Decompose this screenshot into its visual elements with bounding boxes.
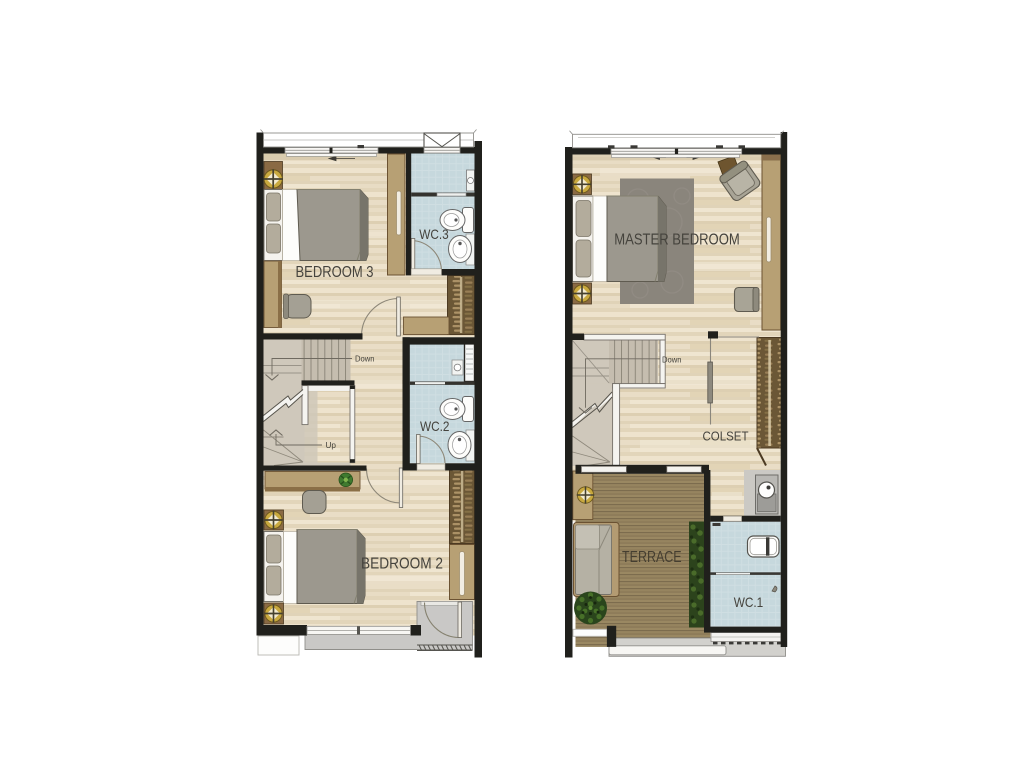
svg-text:WC.3: WC.3 (419, 226, 449, 242)
svg-text:WC.2: WC.2 (420, 418, 450, 434)
svg-text:TERRACE: TERRACE (622, 549, 682, 566)
svg-text:WC.1: WC.1 (734, 594, 764, 610)
svg-text:Down: Down (662, 354, 682, 364)
svg-text:Up: Up (326, 440, 337, 450)
svg-text:COLSET: COLSET (703, 429, 749, 444)
svg-text:BEDROOM 3: BEDROOM 3 (296, 264, 374, 281)
svg-text:BEDROOM 2: BEDROOM 2 (361, 556, 443, 573)
svg-text:MASTER BEDROOM: MASTER BEDROOM (614, 231, 740, 248)
svg-text:Down: Down (355, 353, 375, 363)
